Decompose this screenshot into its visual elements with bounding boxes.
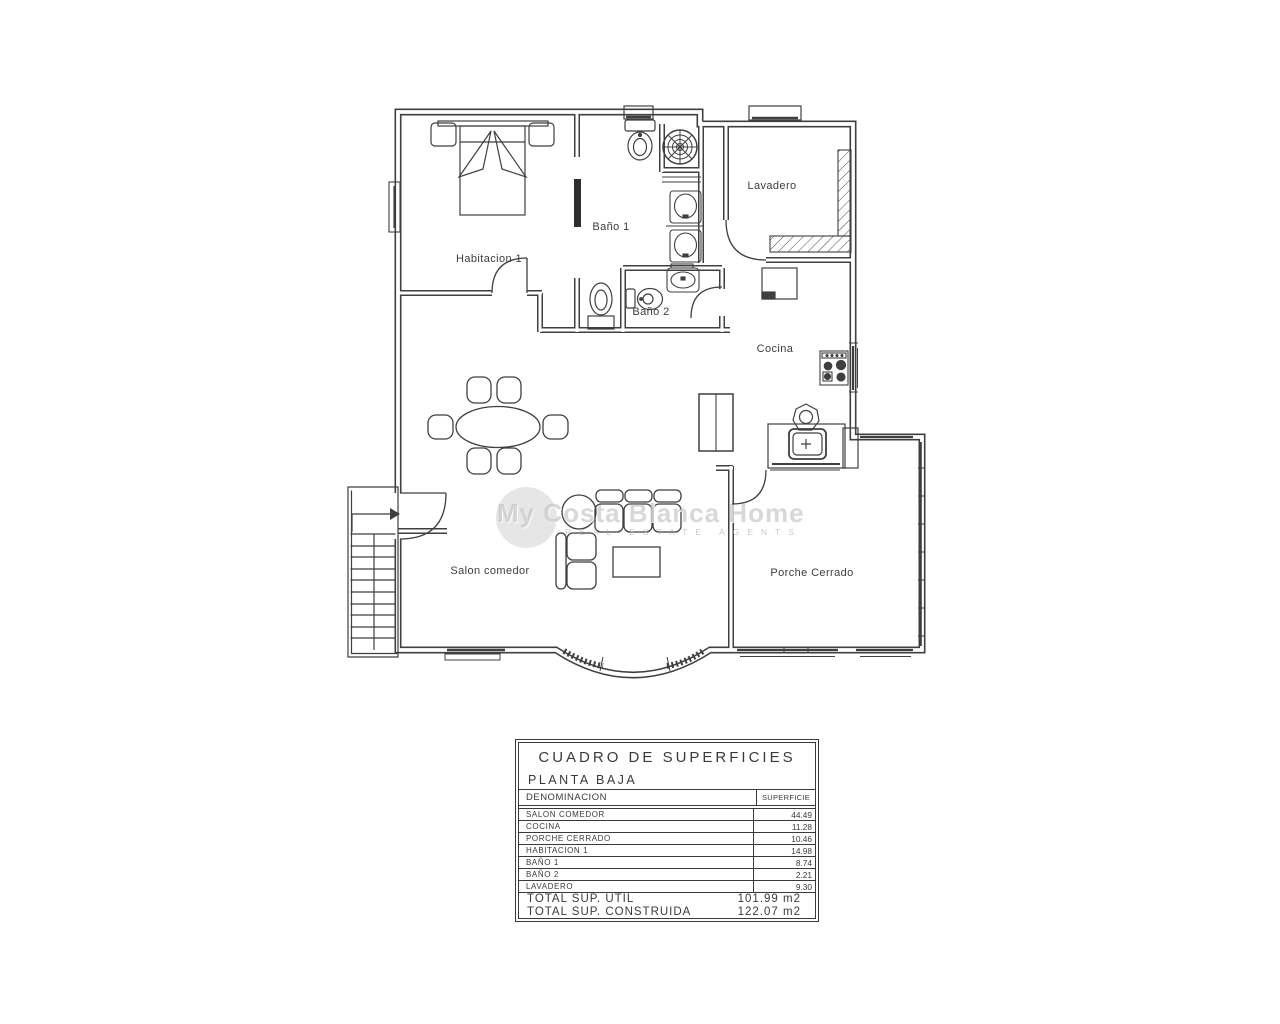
stove-icon xyxy=(820,351,848,385)
kitchen-sink-icon xyxy=(768,404,858,468)
row-name: HABITACION 1 xyxy=(519,845,753,856)
row-name: LAVADERO xyxy=(519,881,753,892)
room-label-bano-1: Baño 1 xyxy=(592,221,629,233)
fridge-icon xyxy=(762,268,797,299)
table-row: PORCHE CERRADO 10.46 xyxy=(519,833,815,845)
toilet-icon xyxy=(625,120,655,160)
column-header-name: DENOMINACION xyxy=(519,790,756,805)
bath1-door-leaf xyxy=(574,179,581,227)
table-row: HABITACION 1 14.98 xyxy=(519,845,815,857)
row-name: BAÑO 1 xyxy=(519,857,753,868)
stairs xyxy=(348,487,400,657)
direction-arrow xyxy=(352,514,390,532)
laundry-counter xyxy=(770,150,851,252)
bath2-basin-icon xyxy=(667,264,699,292)
room-label-bano-2: Baño 2 xyxy=(632,306,669,318)
row-area: 8.74 xyxy=(753,857,815,868)
table-row: LAVADERO 9.30 xyxy=(519,881,815,893)
bed-icon xyxy=(431,121,554,215)
row-area: 2.21 xyxy=(753,869,815,880)
washbasin-icon xyxy=(666,191,703,262)
total-construida-value: 122.07 m2 xyxy=(738,906,801,918)
floorplan-sheet: Habitacion 1 Baño 1 Baño 2 Lavadero Coci… xyxy=(0,0,1280,1024)
row-area: 44.49 xyxy=(753,809,815,820)
row-name: PORCHE CERRADO xyxy=(519,833,753,844)
row-area: 14.98 xyxy=(753,845,815,856)
kitchen-pillar xyxy=(699,394,733,451)
table-row: SALON COMEDOR 44.49 xyxy=(519,809,815,821)
surface-table: CUADRO DE SUPERFICIES PLANTA BAJA DENOMI… xyxy=(515,739,819,922)
table-row: COCINA 11.28 xyxy=(519,821,815,833)
row-area: 10.46 xyxy=(753,833,815,844)
table-row: BAÑO 2 2.21 xyxy=(519,869,815,881)
surface-table-subtitle: PLANTA BAJA xyxy=(519,770,815,790)
shower-icon xyxy=(662,130,701,182)
row-name: BAÑO 2 xyxy=(519,869,753,880)
row-name: SALON COMEDOR xyxy=(519,809,753,820)
row-area: 9.30 xyxy=(753,881,815,892)
column-header-area: SUPERFICIE xyxy=(756,790,815,805)
room-label-habitacion-1: Habitacion 1 xyxy=(456,253,522,265)
room-label-lavadero: Lavadero xyxy=(747,180,796,192)
row-name: COCINA xyxy=(519,821,753,832)
total-util-row: TOTAL SUP. UTIL 101.99 m2 xyxy=(519,893,815,906)
total-util-value: 101.99 m2 xyxy=(738,893,801,905)
coffee-table-icon xyxy=(613,547,660,577)
watermark-tagline: REAL ESTATE AGENTS xyxy=(565,527,802,537)
total-construida-row: TOTAL SUP. CONSTRUIDA 122.07 m2 xyxy=(519,906,815,919)
watermark-brand: My Costa Blanca Home xyxy=(497,498,805,529)
row-area: 11.28 xyxy=(753,821,815,832)
room-label-salon-comedor: Salon comedor xyxy=(450,565,529,577)
total-util-label: TOTAL SUP. UTIL xyxy=(527,893,634,905)
dining-table-icon xyxy=(428,377,568,474)
room-label-cocina: Cocina xyxy=(757,343,794,355)
total-construida-label: TOTAL SUP. CONSTRUIDA xyxy=(527,906,691,918)
surface-table-inner-border: CUADRO DE SUPERFICIES PLANTA BAJA DENOMI… xyxy=(518,742,816,919)
table-row: BAÑO 1 8.74 xyxy=(519,857,815,869)
room-label-porche-cerrado: Porche Cerrado xyxy=(770,567,853,579)
bidet-icon xyxy=(588,283,614,329)
surface-table-title: CUADRO DE SUPERFICIES xyxy=(519,743,815,770)
surface-table-header: DENOMINACION SUPERFICIE xyxy=(519,790,815,805)
